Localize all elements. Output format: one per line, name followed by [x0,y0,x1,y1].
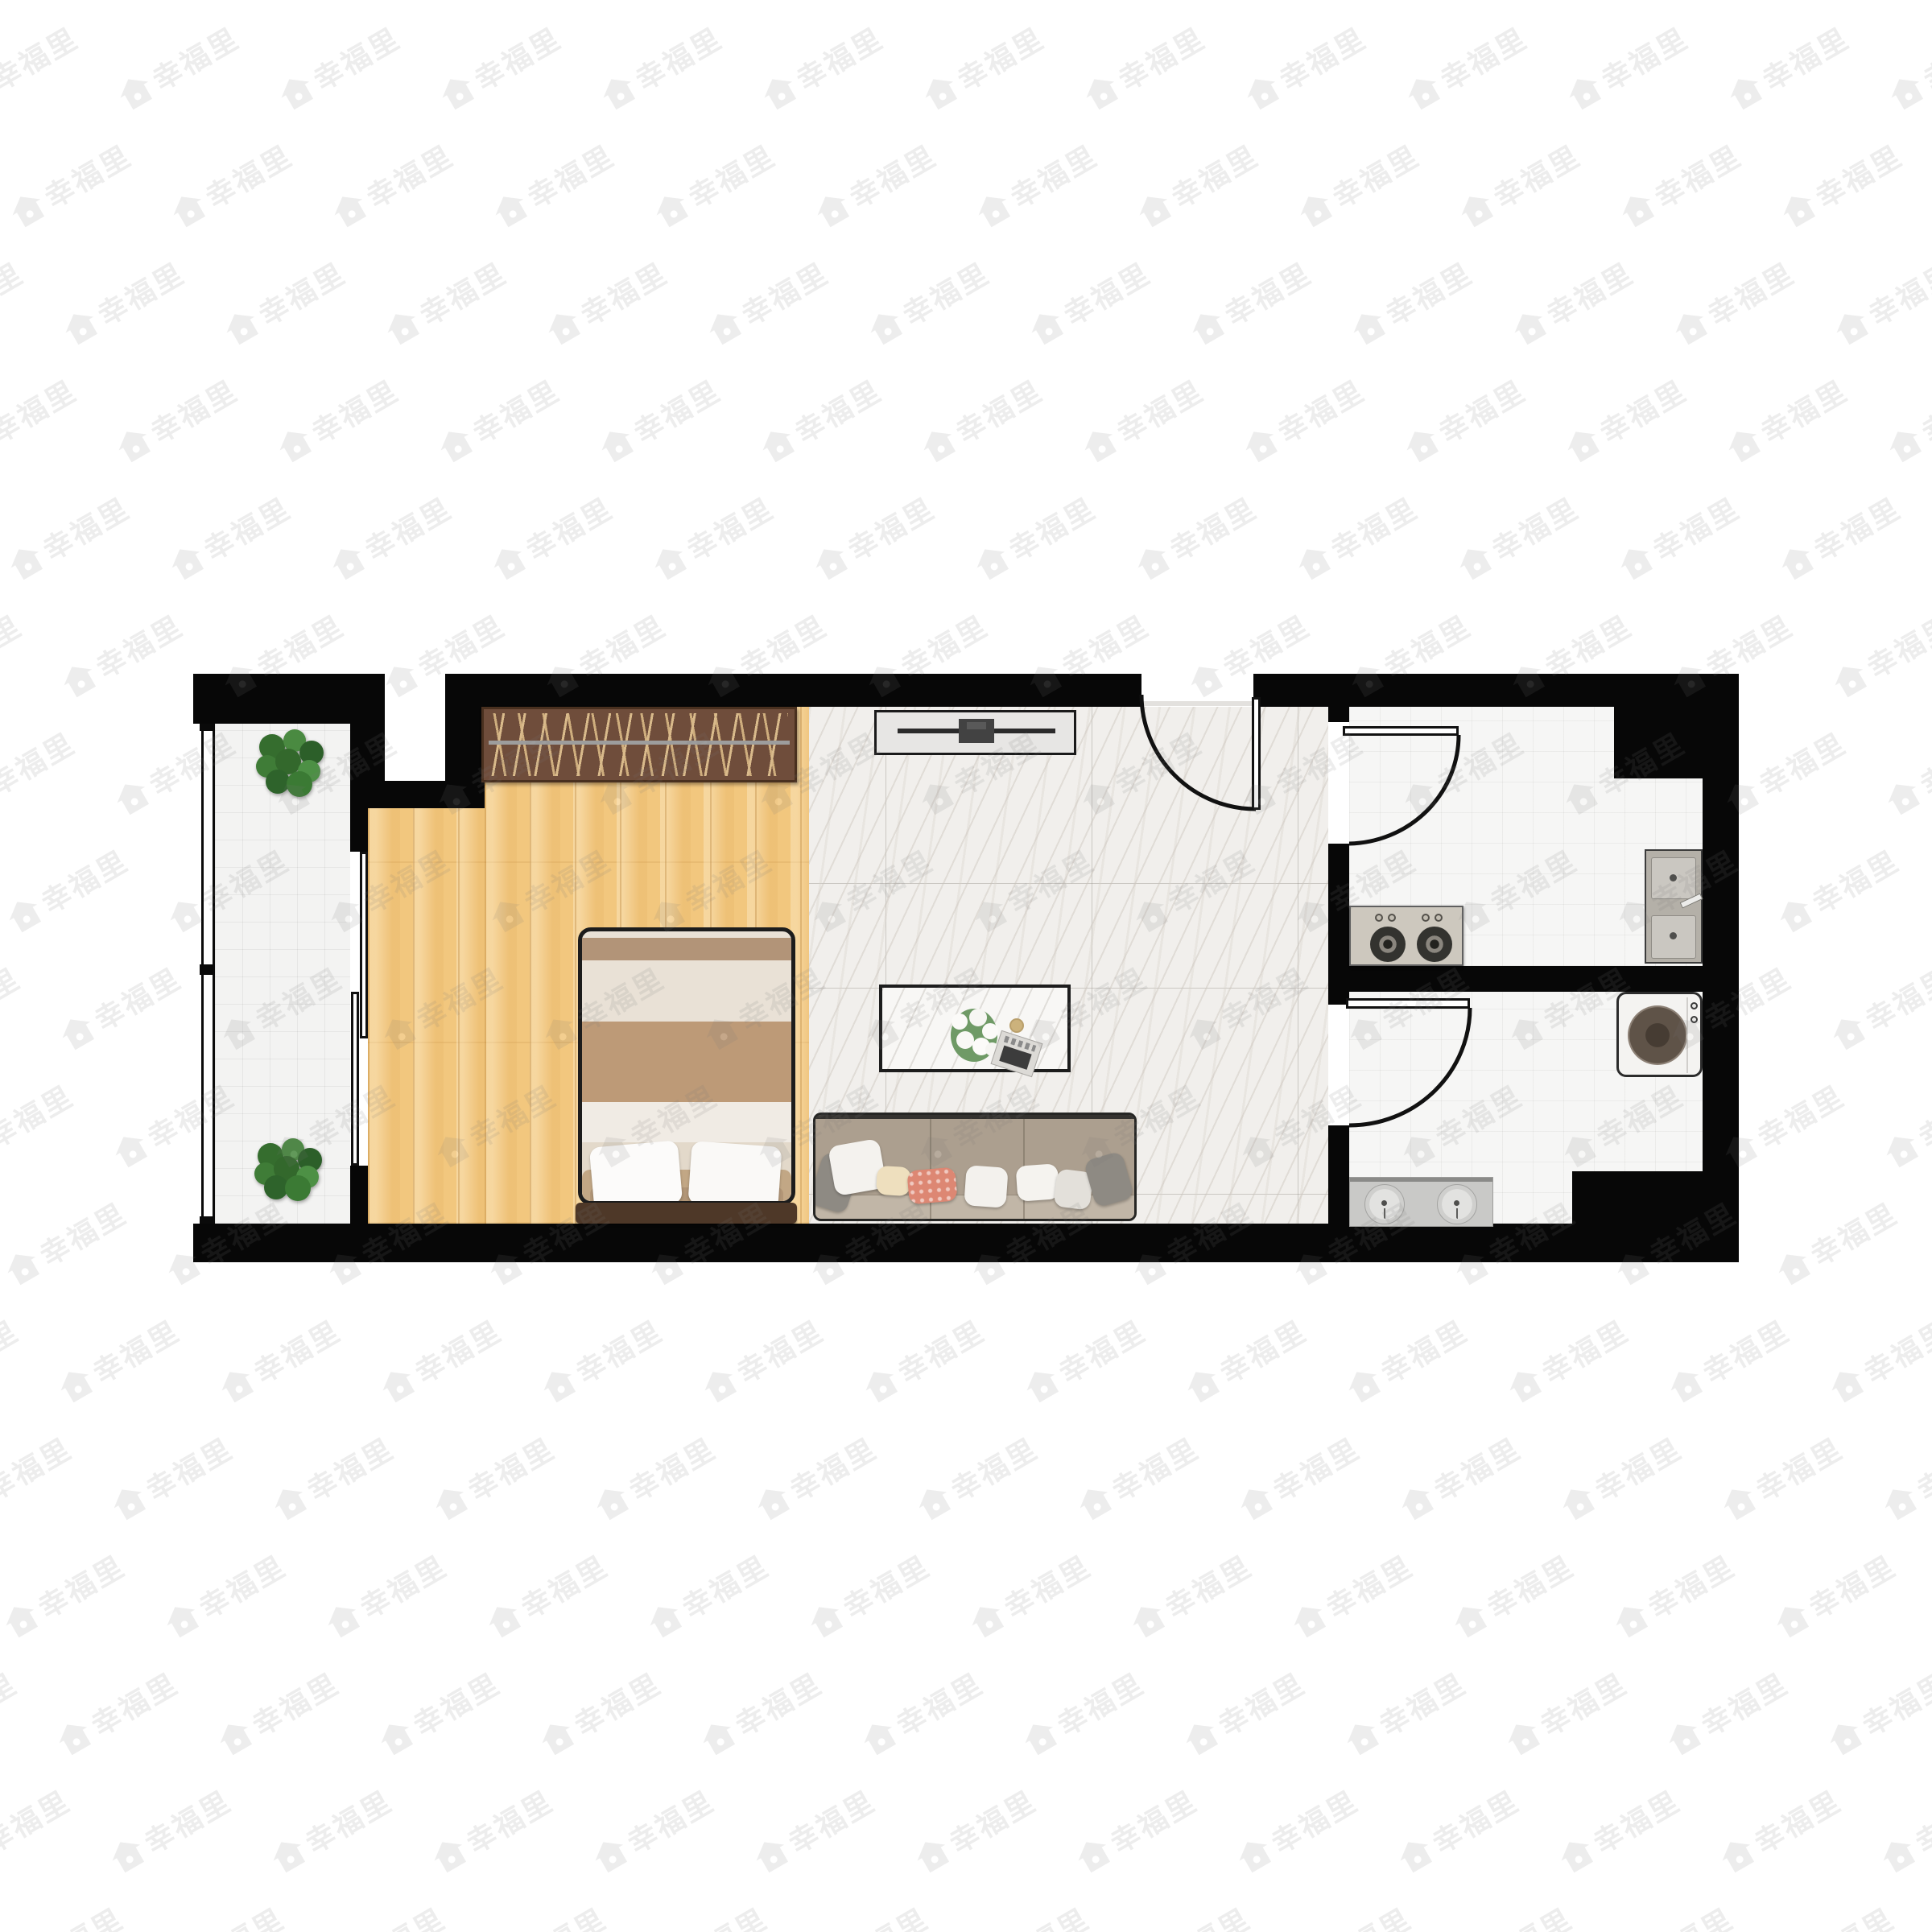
bathroom-door-arc [1349,1008,1470,1125]
kitchen-door-leaf [1343,726,1459,736]
kitchen-door-arc [1349,735,1459,844]
entry-door-arc [1141,695,1256,809]
door-arcs-overlay [0,0,1932,1932]
floor-plan-canvas: 幸福里幸福里幸福里幸福里幸福里幸福里幸福里幸福里幸福里幸福里幸福里幸福里幸福里幸… [0,0,1932,1932]
entry-door-leaf [1252,697,1261,810]
bathroom-door-leaf [1346,998,1470,1009]
